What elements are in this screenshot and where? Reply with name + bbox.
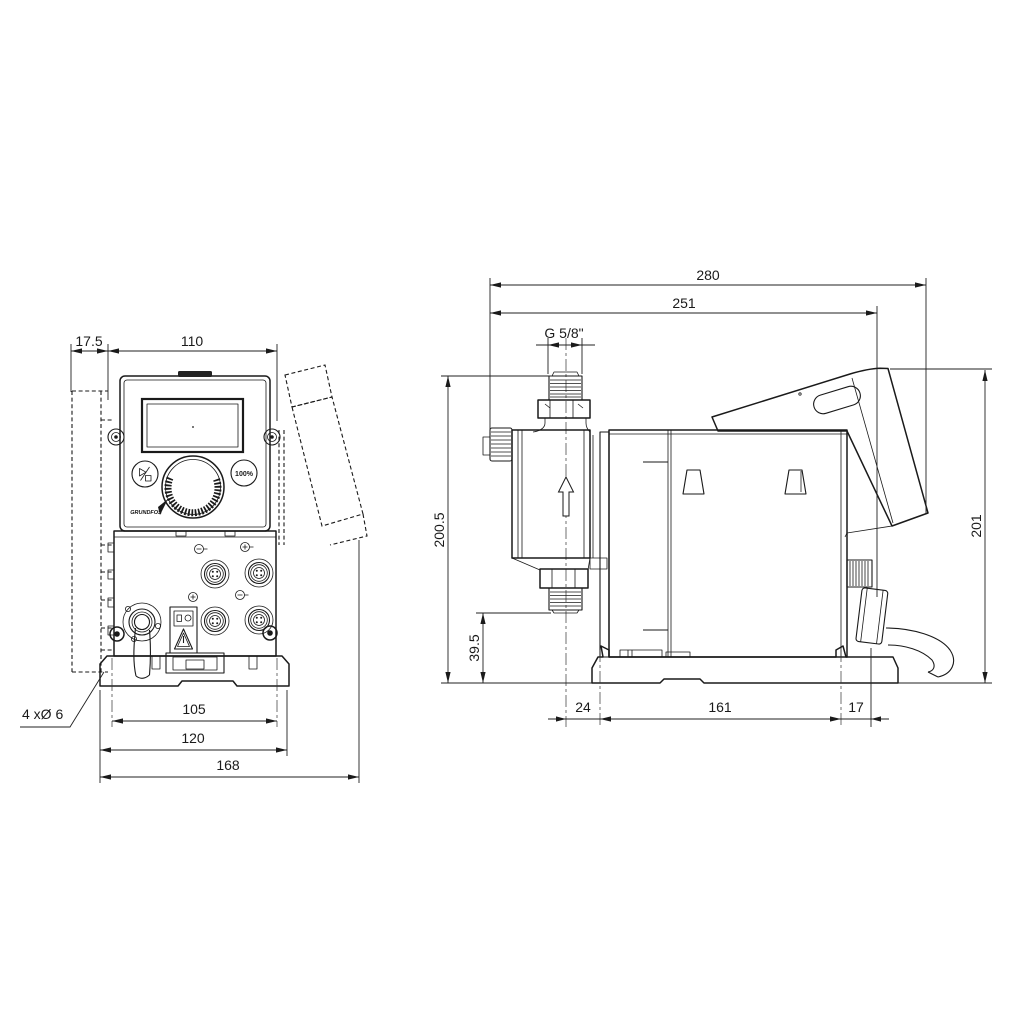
hundred-percent-label: 100% [235,471,254,478]
dim-label-panel-width: 110 [181,333,204,349]
panel-top-tab [178,371,212,377]
dim-label-overall-depth: 280 [696,267,720,283]
dim-label-base-width: 120 [181,730,205,746]
grundfos-logo-text: GRUNDFOS [130,510,162,516]
dim-label-base-rear: 17 [848,699,864,715]
dim-label-connection-thread: G 5/8" [544,325,583,341]
dim-label-base-length: 161 [708,699,732,715]
dim-label-depth-to-gland: 251 [672,295,696,311]
dim-label-head-height: 200.5 [431,512,447,547]
dim-label-hole-spacing: 105 [182,701,206,717]
dim-label-overall-width: 168 [216,757,240,773]
dim-label-overall-height: 201 [968,514,984,538]
dim-label-inlet-height: 39.5 [466,634,482,661]
pump-dimensional-drawing: 100% GRUNDFOS [0,0,1024,1024]
dim-label-wall-offset: 17.5 [75,333,102,349]
dim-label-base-front: 24 [575,699,591,715]
note-mounting-holes-label: 4 xØ 6 [22,706,63,722]
